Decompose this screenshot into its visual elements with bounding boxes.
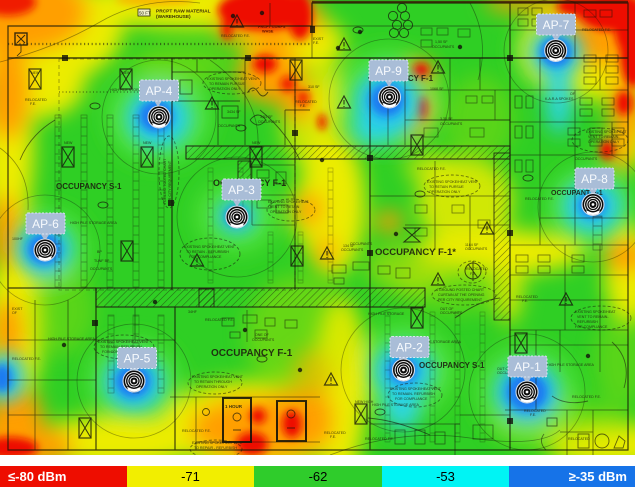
svg-text:NEW HIGH: NEW HIGH xyxy=(355,400,374,404)
svg-text:CURTAIN AT THE OPENING: CURTAIN AT THE OPENING xyxy=(438,293,485,297)
svg-text:OCCUPANTS: OCCUPANTS xyxy=(90,267,113,271)
svg-text:OCCUPANTS: OCCUPANTS xyxy=(432,45,455,49)
svg-text:OCCUPANTS: OCCUPANTS xyxy=(465,247,488,251)
svg-text:TO RETAIN THROUGH: TO RETAIN THROUGH xyxy=(194,380,232,384)
svg-text:(WAREHOUSE): (WAREHOUSE) xyxy=(156,14,191,20)
svg-text:VENT TO REMAIN-: VENT TO REMAIN- xyxy=(588,135,620,139)
svg-text:EXISTING SPOKE/HEAT VENT: EXISTING SPOKE/HEAT VENT xyxy=(192,441,244,445)
svg-text:TUNF BP: TUNF BP xyxy=(94,259,110,263)
svg-text:F.E.: F.E. xyxy=(470,272,476,276)
svg-text:K.A.R.A SPOKES: K.A.R.A SPOKES xyxy=(545,97,574,101)
svg-text:AP-7: AP-7 xyxy=(543,18,570,32)
svg-text:NEW: NEW xyxy=(143,141,152,145)
svg-text:REFURBISH: REFURBISH xyxy=(577,320,598,324)
svg-text:TO REMAIN- REFURBISH: TO REMAIN- REFURBISH xyxy=(392,392,435,396)
svg-text:EXISTING SPOKE/HEAT VENT: EXISTING SPOKE/HEAT VENT xyxy=(184,245,236,249)
svg-text:PRCPT CORPS: PRCPT CORPS xyxy=(258,25,286,29)
svg-text:OCCUPANTS: OCCUPANTS xyxy=(341,248,364,252)
svg-text:TO RETAIN PURSUE: TO RETAIN PURSUE xyxy=(429,185,464,189)
svg-text:RELOCATED F.E.: RELOCATED F.E. xyxy=(582,28,611,32)
svg-text:OPERATION ONLY: OPERATION ONLY xyxy=(270,210,302,214)
svg-text:EXISTING SPOKE/HEAT VENT: EXISTING SPOKE/HEAT VENT xyxy=(98,340,150,344)
svg-text:PRCPT RAW MATERIAL: PRCPT RAW MATERIAL xyxy=(156,9,211,15)
svg-text:RELOCATED F.E.: RELOCATED F.E. xyxy=(365,437,394,441)
svg-text:EXISTING SPOKE/HEAT: EXISTING SPOKE/HEAT xyxy=(268,200,309,204)
svg-text:NEW: NEW xyxy=(31,71,40,75)
svg-text:HIGH PILE STORAGE AREA: HIGH PILE STORAGE AREA xyxy=(48,337,95,341)
svg-text:FOR COMPLIANCE: FOR COMPLIANCE xyxy=(395,397,428,401)
svg-text:OPERATION ONLY: OPERATION ONLY xyxy=(588,140,620,144)
svg-text:OCCUPANCY F-1*: OCCUPANCY F-1* xyxy=(375,247,456,258)
svg-text:ONE OF: ONE OF xyxy=(255,333,270,337)
svg-text:EXISTING SPOKE/HEAT VENT: EXISTING SPOKE/HEAT VENT xyxy=(207,77,259,81)
svg-text:VENT TO REMAIN-: VENT TO REMAIN- xyxy=(577,315,609,319)
svg-text:TO RETAIN - REFURBISH: TO RETAIN - REFURBISH xyxy=(186,250,229,254)
svg-text:OCCUPANCY S-1: OCCUPANCY S-1 xyxy=(419,361,485,370)
svg-text:OCCUPANTS: OCCUPANTS xyxy=(575,157,598,161)
svg-text:AP-3: AP-3 xyxy=(228,183,255,197)
svg-text:F.E.: F.E. xyxy=(313,41,319,45)
svg-text:EXISTING SPOKE/HEAT VENT: EXISTING SPOKE/HEAT VENT xyxy=(427,180,479,184)
svg-text:AP-5: AP-5 xyxy=(124,352,151,366)
svg-text:BP: BP xyxy=(97,250,102,254)
svg-text:4 GROUND POSTED CHART: 4 GROUND POSTED CHART xyxy=(436,288,485,292)
svg-text:HIGH PILE STORAGE: HIGH PILE STORAGE xyxy=(368,312,405,316)
svg-text:HIGH PILE STORAGE AREA: HIGH PILE STORAGE AREA xyxy=(372,403,419,407)
svg-text:OPERATION ONLY: OPERATION ONLY xyxy=(196,385,228,389)
svg-text:OPERATION ONLY: OPERATION ONLY xyxy=(209,87,241,91)
svg-text:RELOCATED F.E.: RELOCATED F.E. xyxy=(525,197,554,201)
svg-text:OF: OF xyxy=(12,311,18,315)
svg-text:OCCUPANTS: OCCUPANTS xyxy=(252,338,275,342)
svg-text:3,33 SF: 3,33 SF xyxy=(440,117,453,121)
svg-text:AP-1: AP-1 xyxy=(514,360,541,374)
svg-text:1,50 SF: 1,50 SF xyxy=(435,40,448,44)
svg-text:OPERATION ONLY: OPERATION ONLY xyxy=(429,190,461,194)
svg-text:WHSE: WHSE xyxy=(262,30,274,34)
svg-text:F.E.: F.E. xyxy=(530,413,536,417)
svg-text:1 HOUR: 1 HOUR xyxy=(225,404,243,409)
svg-text:310 SF: 310 SF xyxy=(308,85,320,89)
svg-text:RELOCATED F.E.: RELOCATED F.E. xyxy=(182,429,211,433)
svg-text:NEW: NEW xyxy=(64,141,73,145)
svg-text:OCCUPANTS: OCCUPANTS xyxy=(218,124,241,128)
svg-text:OCCUPANCY F-1: OCCUPANCY F-1 xyxy=(211,348,293,359)
svg-text:TO REMAIN PURSUE: TO REMAIN PURSUE xyxy=(209,82,245,86)
svg-text:NEW: NEW xyxy=(252,141,261,145)
svg-text:F.E.: F.E. xyxy=(30,102,36,106)
svg-text:RELOCATED F.E.: RELOCATED F.E. xyxy=(572,395,601,399)
svg-text:AP-8: AP-8 xyxy=(581,172,608,186)
svg-text:PER CITY REQUIREMENT: PER CITY REQUIREMENT xyxy=(438,298,483,302)
svg-text:TO REPAIR - REFURBISH: TO REPAIR - REFURBISH xyxy=(194,446,237,450)
svg-text:RELOCATED F.E.: RELOCATED F.E. xyxy=(221,34,250,38)
svg-text:RELOCATED F.E.: RELOCATED F.E. xyxy=(205,318,234,322)
svg-text:RELOCATED: RELOCATED xyxy=(568,437,590,441)
svg-text:F.E.: F.E. xyxy=(330,435,336,439)
svg-text:3,53 SF: 3,53 SF xyxy=(260,115,273,119)
svg-text:RELOCATED: RELOCATED xyxy=(466,267,488,271)
svg-text:EXISTING SPOKE/HEAT VENT: EXISTING SPOKE/HEAT VENT xyxy=(192,375,244,379)
svg-text:HIGH PILE STORAGE AREA: HIGH PILE STORAGE AREA xyxy=(547,363,594,367)
svg-text:AP-9: AP-9 xyxy=(375,64,402,78)
svg-text:EXISTING SPOKE/HEAT: EXISTING SPOKE/HEAT xyxy=(575,310,616,314)
svg-text:OCCUPANTS: OCCUPANTS xyxy=(440,122,463,126)
svg-text:AP-6: AP-6 xyxy=(32,217,59,231)
svg-text:4 CEILING TOUTED CHART: 4 CEILING TOUTED CHART xyxy=(163,158,167,205)
svg-text:OCCUPANCY S-1: OCCUPANCY S-1 xyxy=(56,182,122,191)
svg-text:RELOCATED F.E.: RELOCATED F.E. xyxy=(12,357,41,361)
svg-text:OF: OF xyxy=(570,92,576,96)
svg-text:AP-4: AP-4 xyxy=(146,84,173,98)
svg-text:HIGH PILE STORAGE AREA: HIGH PILE STORAGE AREA xyxy=(70,221,117,225)
svg-text:50 FT: 50 FT xyxy=(139,11,151,16)
svg-text:OCCUPANTS: OCCUPANTS xyxy=(350,242,373,246)
svg-text:100HF: 100HF xyxy=(12,237,24,241)
svg-text:VENT TO RETAIN: VENT TO RETAIN xyxy=(270,205,300,209)
svg-text:FOR COMPLIANCE: FOR COMPLIANCE xyxy=(189,255,222,259)
svg-text:PER CITY REQUIREMENT: PER CITY REQUIREMENT xyxy=(168,160,172,205)
svg-text:F.E.: F.E. xyxy=(300,104,306,108)
svg-text:RELOCATED F.E.: RELOCATED F.E. xyxy=(417,167,446,171)
svg-text:OCCUPANTS: OCCUPANTS xyxy=(440,311,463,315)
svg-text:OCCUPANTS: OCCUPANTS xyxy=(258,120,281,124)
svg-text:34HF: 34HF xyxy=(188,310,198,314)
svg-text:EXISTING SPOKE/HEAT: EXISTING SPOKE/HEAT xyxy=(586,130,627,134)
svg-text:1068 SF: 1068 SF xyxy=(430,87,444,91)
svg-text:NEW: NEW xyxy=(122,71,131,75)
svg-text:3434 SF: 3434 SF xyxy=(227,110,241,114)
svg-text:EXISTING SPOKE/HEAT VENT: EXISTING SPOKE/HEAT VENT xyxy=(390,387,442,391)
svg-text:F.E.: F.E. xyxy=(522,299,528,303)
svg-text:AP-2: AP-2 xyxy=(396,341,423,355)
svg-text:FOR COMPLIANCE: FOR COMPLIANCE xyxy=(575,325,608,329)
